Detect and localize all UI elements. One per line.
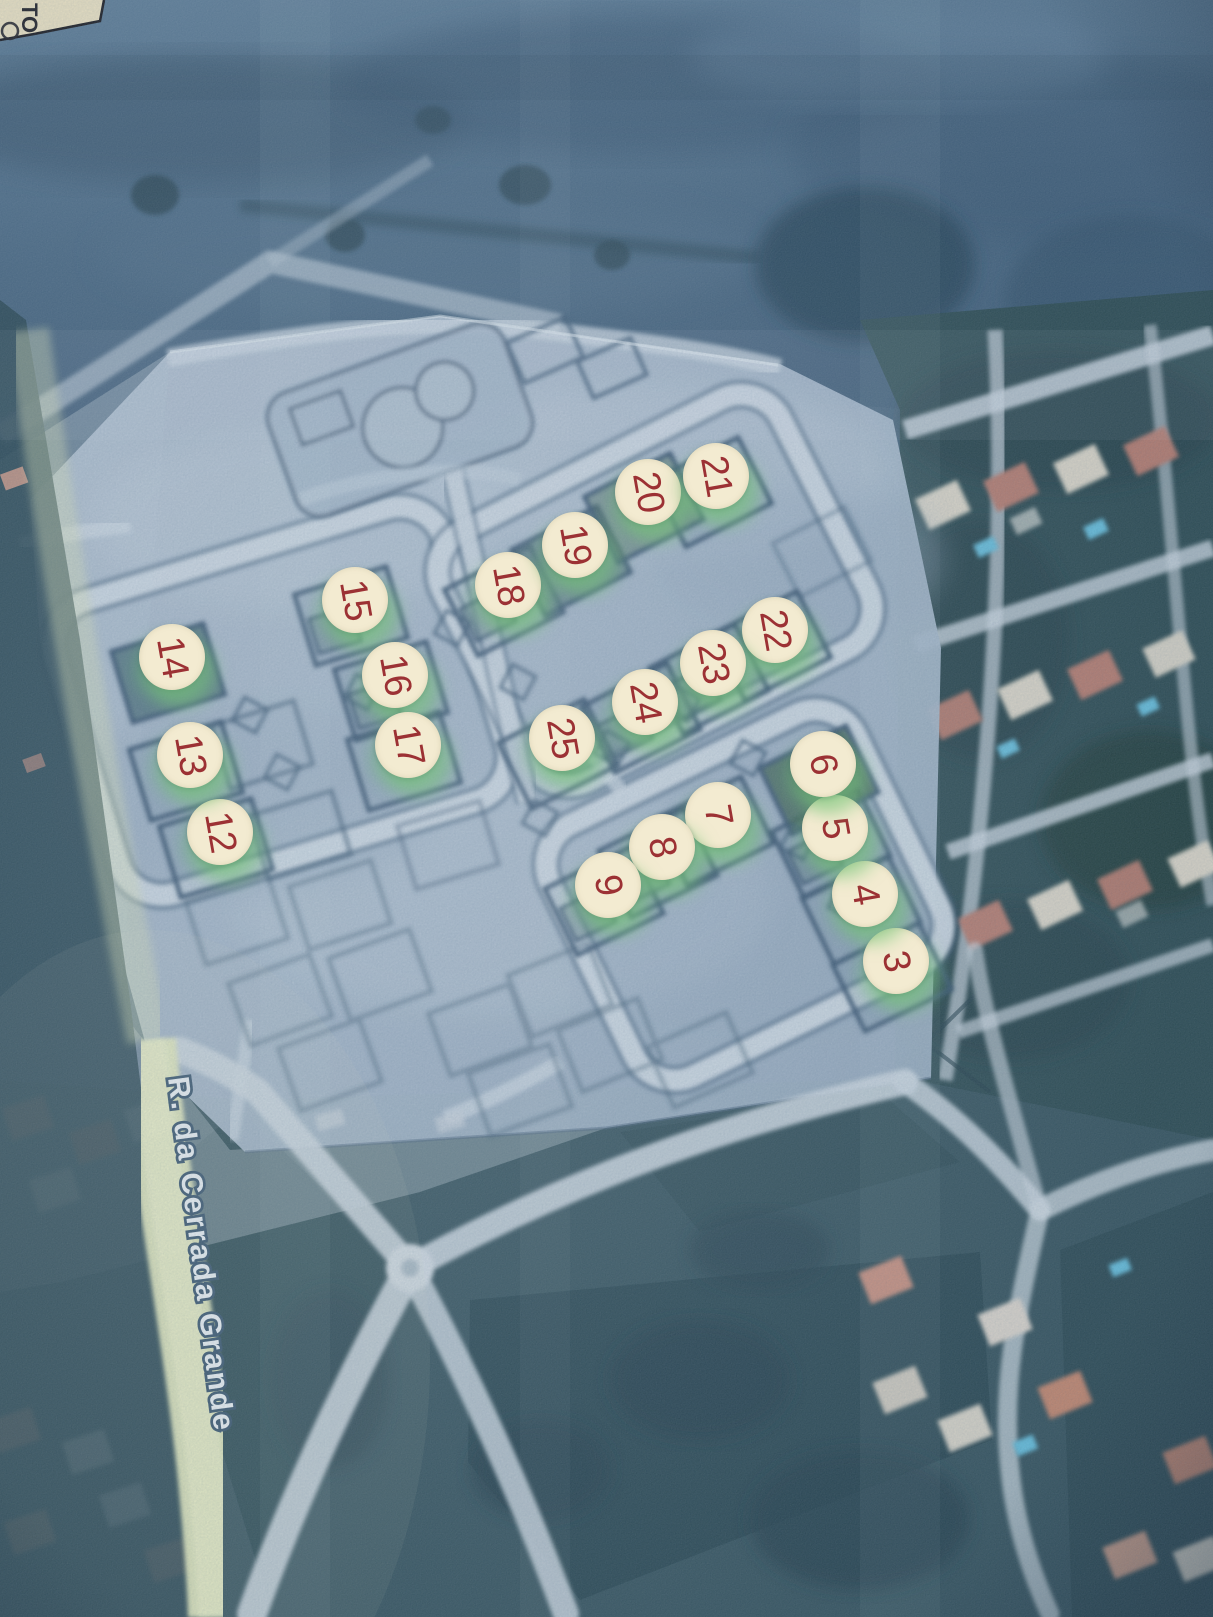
scanned-aerial-map-photo: R. da Cerrada Grande TO 3456789121314151… [0, 0, 1213, 1617]
photo-lighting-overlay [0, 0, 1213, 1617]
